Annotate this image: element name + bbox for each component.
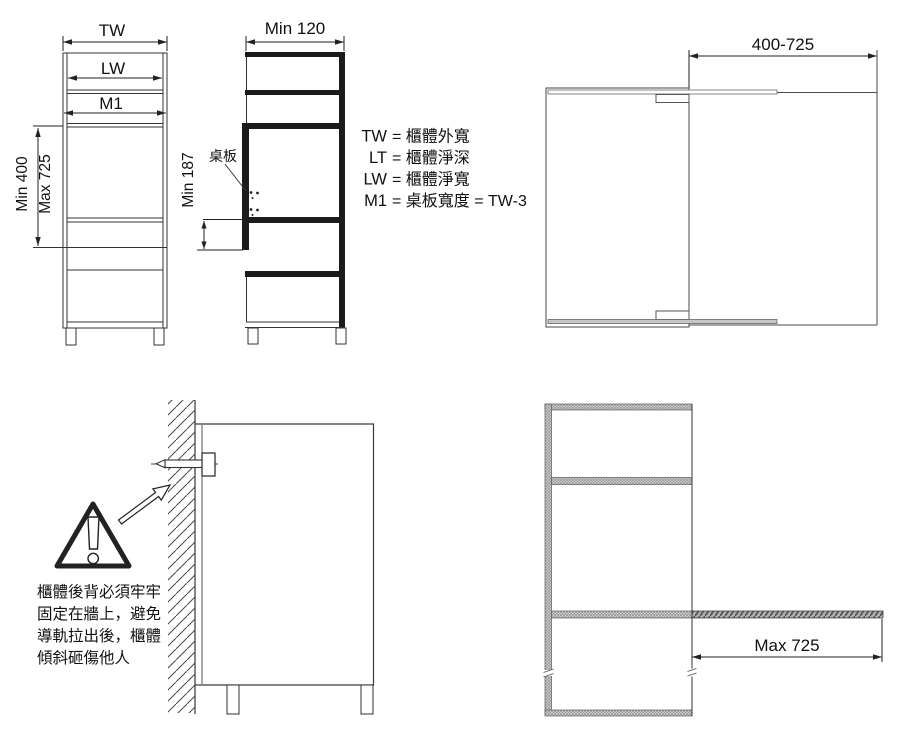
table-board-panel [242,123,345,129]
rail-carriage-bottom [656,311,689,320]
arrowhead [692,654,701,659]
pointer-arrow-icon [119,485,171,524]
legend-code: M1 [364,192,387,210]
arrowhead [873,654,882,659]
shelf-panel [242,217,345,223]
dim-label-max-height: Max 725 [37,154,54,213]
wall-hatch [168,400,195,713]
arrowhead [868,53,877,58]
shelf-panel [245,271,345,277]
back-panel-section [545,404,552,714]
legend-code: TW [361,128,387,146]
legend-block: TW = 櫃體外寬 LT = 櫃體淨深 LW = 櫃體淨寬 M1 = 桌板寬度 … [361,128,527,211]
legend-code: LT [369,149,387,167]
legend-code: LW [363,171,387,189]
dim-label-min-depth: Min 120 [265,19,325,38]
screw-shaft [165,460,202,468]
arrowhead [63,39,72,44]
dim-label-extension-range: 400-725 [752,35,814,54]
warning-line: 傾斜砸傷他人 [37,649,130,667]
shelf-section [552,478,693,485]
slide-rail-bottom [548,320,777,324]
warning-line: 固定在牆上，避免 [37,605,161,623]
diagram-canvas: TW LW M1 Min 400 Max 725 [0,0,916,743]
warning-line: 櫃體後背必須牢牢 [37,583,161,601]
arrowhead [35,128,40,137]
cabinet-leg [154,328,164,345]
shelf-panel [245,90,345,95]
mounting-hole-dots [250,191,259,216]
arrowhead [35,237,40,246]
break-mark [688,669,697,677]
front-view-diagram: TW LW M1 Min 400 Max 725 [14,21,167,345]
exclamation-dot [88,553,98,563]
arrowhead [246,39,255,44]
legend-description: = 櫃體外寬 [392,128,470,146]
legend-description: = 櫃體淨深 [392,149,470,167]
cabinet-body [195,424,374,685]
table-board-section-inside [552,611,693,618]
cabinet-leg [227,685,239,714]
rail-carriage-top [656,95,689,103]
top-panel-section [545,404,692,410]
bottom-panel-section [545,710,692,716]
exclamation-bar [88,517,99,549]
legend-description: = 櫃體淨寬 [392,171,470,189]
cabinet-leg [361,685,373,714]
cabinet-leg [66,328,76,345]
cabinet-leg [336,328,346,344]
cabinet-plan-outline [546,88,689,327]
arrowhead [201,242,206,250]
plan-view-diagram: 400-725 [546,35,877,327]
cabinet-leg [248,328,258,344]
table-board-extended [692,611,883,618]
warning-text: 櫃體後背必須牢牢 固定在牆上，避免 導軌拉出後，櫃體 傾斜砸傷他人 [37,583,161,667]
slide-rail-top [548,90,777,94]
dim-label-min-height: Min 400 [14,156,31,212]
dim-label-max-extension: Max 725 [754,636,819,655]
arrowhead [689,53,698,58]
installation-diagram-page: TW LW M1 Min 400 Max 725 [0,0,916,743]
dim-label-m1: M1 [99,94,123,113]
arrowhead [335,39,344,44]
wall-fixing-diagram: 櫃體後背必須牢牢 固定在牆上，避免 導軌拉出後，櫃體 傾斜砸傷他人 [37,400,374,714]
arrowhead [158,39,167,44]
dim-label-min-clearance: Min 187 [180,152,197,207]
fixing-bracket [202,453,215,476]
dim-label-tw: TW [99,21,125,40]
screw-tip [156,460,165,468]
warning-triangle-icon [57,504,129,566]
legend-description: = 桌板寬度 = TW-3 [392,192,527,210]
top-panel [245,52,345,57]
warning-line: 導軌拉出後，櫃體 [37,627,161,645]
table-board-label: 桌板 [209,148,237,164]
dim-label-lw: LW [101,59,125,78]
extended-view-diagram: Max 725 [544,404,884,716]
side-view-diagram: Min 120 桌板 Min 187 [180,19,346,344]
arrowhead [201,221,206,229]
break-mark [544,669,554,677]
